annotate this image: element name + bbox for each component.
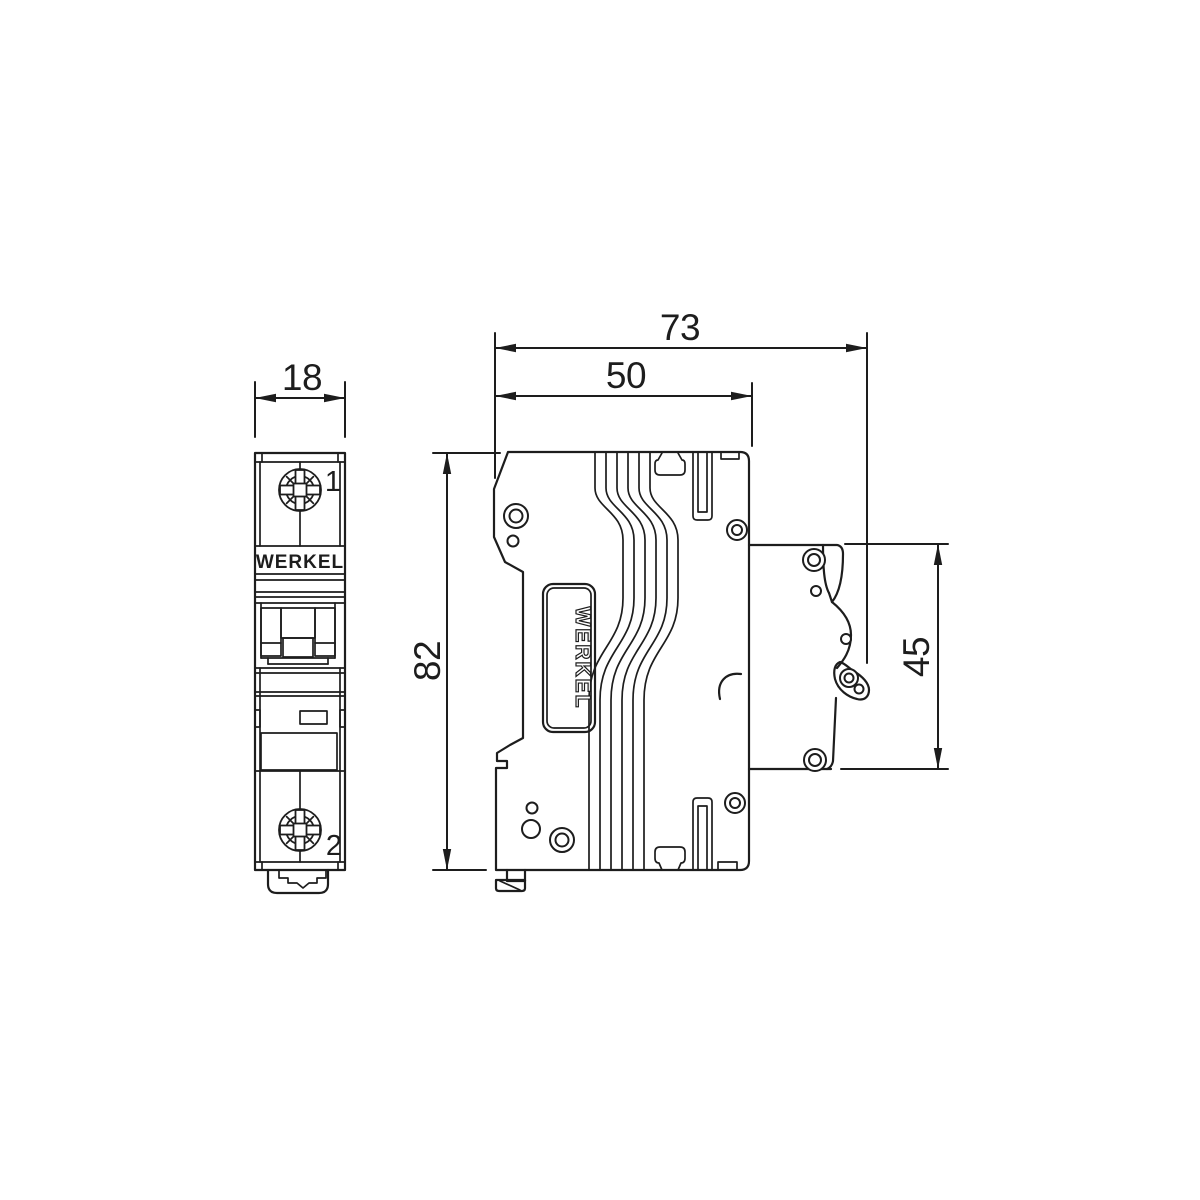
top-slot-inner — [698, 453, 707, 512]
dim-value-50: 50 — [606, 355, 646, 396]
top-t-slot — [655, 453, 685, 475]
dim-value-18: 18 — [282, 357, 322, 398]
front-terminal-top: 1 — [279, 462, 341, 546]
front-top-band — [255, 453, 345, 462]
mold-arc-detail — [719, 674, 741, 699]
terminal-number-bottom: 2 — [326, 830, 342, 862]
front-rib-lines — [255, 580, 345, 603]
dim-body-depth: 50 — [495, 355, 752, 446]
dimension-drawing-canvas: 1 WERKEL — [0, 0, 1200, 1200]
side-latch-left — [255, 710, 260, 727]
brand-logo-side: WERKEL — [571, 607, 594, 710]
label-window — [300, 711, 327, 724]
dim-front-width: 18 — [255, 357, 345, 437]
front-mid-bands — [255, 668, 345, 696]
pozidriv-screw-icon — [279, 809, 321, 851]
bottom-slot-outer — [693, 798, 712, 870]
front-view: 1 WERKEL — [255, 453, 345, 893]
bottom-step-notch — [718, 862, 737, 870]
front-toggle-switch — [261, 603, 335, 664]
front-bottom-band — [255, 862, 345, 870]
dim-din-height: 45 — [841, 544, 948, 769]
front-din-clip-foot — [268, 870, 328, 893]
dim-value-45: 45 — [896, 637, 937, 677]
side-latch-right — [340, 710, 345, 727]
side-din-tab — [496, 870, 525, 891]
dim-overall-depth: 73 — [495, 307, 867, 663]
side-view: WERKEL — [494, 452, 869, 891]
front-terminal-bottom: 2 — [279, 771, 342, 862]
top-step-notch — [721, 453, 739, 459]
top-slot-outer — [693, 453, 712, 520]
toggle-lever — [281, 608, 315, 638]
brand-logo-front: WERKEL — [256, 552, 344, 573]
pozidriv-screw-icon — [279, 469, 321, 511]
side-brand-label: WERKEL — [543, 584, 595, 732]
lower-cover-panel — [261, 733, 337, 770]
side-rib-lines — [589, 453, 678, 870]
terminal-number-top: 1 — [325, 466, 341, 498]
dim-value-82: 82 — [407, 641, 448, 681]
front-brand-band: WERKEL — [255, 546, 345, 574]
dim-value-73: 73 — [660, 307, 700, 348]
dim-height: 82 — [407, 453, 500, 870]
din-rail-mount — [749, 545, 869, 771]
bottom-t-slot — [655, 847, 685, 870]
bottom-slot-inner — [698, 806, 707, 870]
